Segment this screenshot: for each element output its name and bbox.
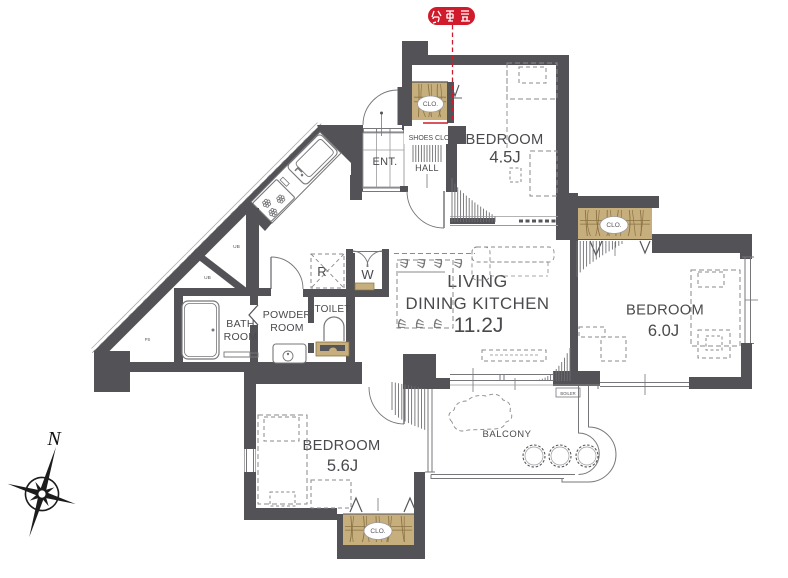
svg-text:DINING KITCHEN: DINING KITCHEN <box>405 294 549 313</box>
svg-text:LIVING: LIVING <box>447 271 507 291</box>
svg-text:ROOM: ROOM <box>224 331 258 343</box>
svg-text:POWDER: POWDER <box>263 309 312 321</box>
svg-text:PS: PS <box>145 337 151 342</box>
svg-text:TOILET: TOILET <box>314 304 350 315</box>
svg-text:11.2J: 11.2J <box>454 314 504 337</box>
svg-text:W: W <box>361 267 374 282</box>
svg-text:SHOES CLO.: SHOES CLO. <box>409 135 452 142</box>
svg-text:BEDROOM: BEDROOM <box>466 132 544 148</box>
svg-text:HALL: HALL <box>415 163 439 173</box>
svg-text:BEDROOM: BEDROOM <box>626 303 704 319</box>
svg-text:ROOM: ROOM <box>270 322 303 334</box>
svg-text:5.6J: 5.6J <box>327 457 358 475</box>
svg-text:UB: UB <box>204 275 211 281</box>
svg-text:BALCONY: BALCONY <box>483 429 532 440</box>
svg-text:6.0J: 6.0J <box>648 322 679 340</box>
svg-text:4.5J: 4.5J <box>489 149 520 167</box>
svg-text:BOILER: BOILER <box>560 391 575 396</box>
svg-text:BEDROOM: BEDROOM <box>303 438 381 454</box>
svg-text:CLO.: CLO. <box>423 101 438 108</box>
svg-text:ENT.: ENT. <box>372 156 397 168</box>
svg-text:UB: UB <box>233 244 240 250</box>
svg-text:BATH: BATH <box>226 318 254 330</box>
svg-text:N: N <box>46 428 62 450</box>
svg-text:R: R <box>317 264 326 279</box>
svg-text:CLO.: CLO. <box>370 528 385 535</box>
svg-text:CLO.: CLO. <box>606 222 621 229</box>
